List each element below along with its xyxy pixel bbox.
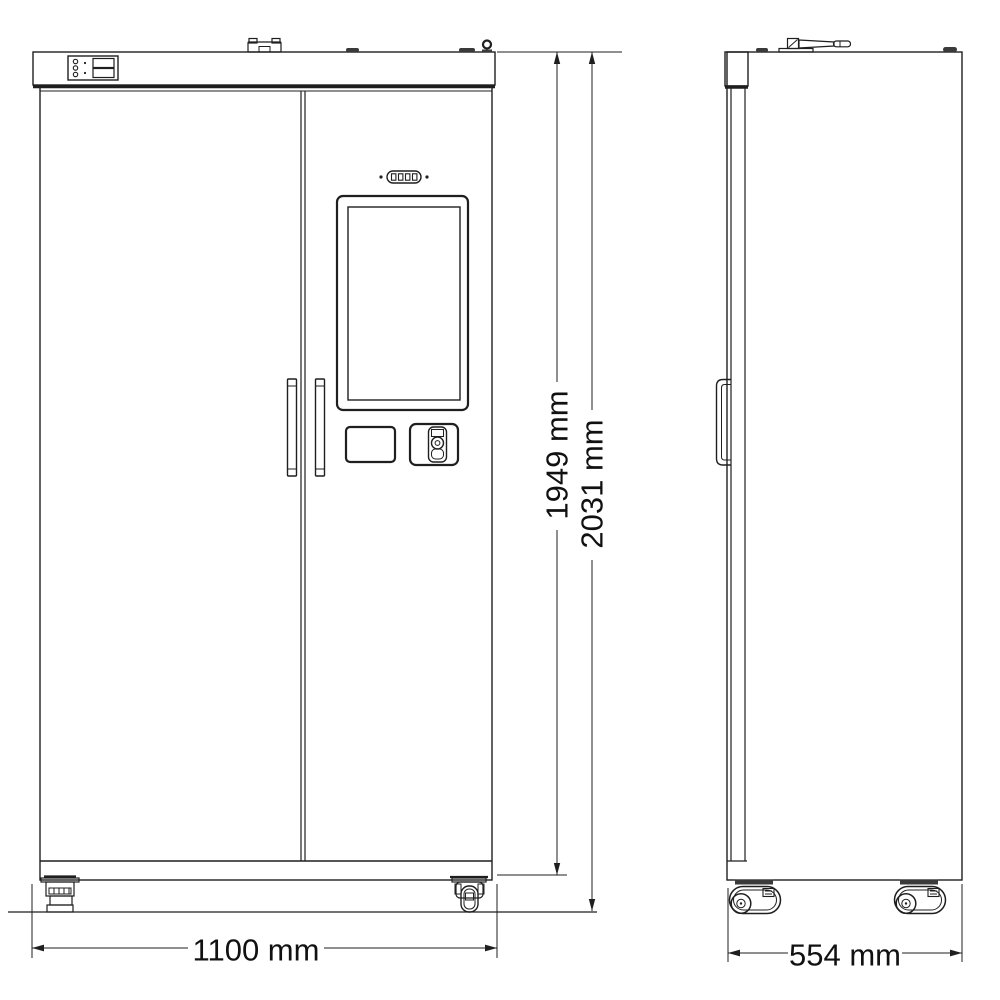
cam-lock <box>410 424 458 465</box>
led-icon <box>73 72 77 76</box>
side-view <box>717 39 963 914</box>
hinge-cap <box>459 48 475 52</box>
arrow-right-icon <box>485 945 497 952</box>
dot-icon <box>84 72 86 74</box>
hinge-cap <box>943 47 957 52</box>
hinge-cap <box>346 48 359 52</box>
hinge-cap <box>756 48 768 52</box>
arrow-left-icon <box>32 945 44 952</box>
swivel-caster-side-rear <box>895 880 946 914</box>
lift-ring-icon <box>483 41 491 49</box>
top-fittings <box>248 39 492 53</box>
dim-label-front-width: 1100 mm <box>193 933 320 968</box>
door-handle-left <box>288 379 297 476</box>
foot-teeth-row <box>49 888 71 894</box>
arrow-up-icon <box>589 52 595 64</box>
screen-bezel <box>337 196 468 410</box>
side-door-handle <box>717 380 732 466</box>
arrow-right-icon <box>950 950 962 957</box>
drawing-canvas: 1949 mm 2031 mm 1100 mm <box>0 0 1000 1000</box>
technical-drawing: 1949 mm 2031 mm 1100 mm <box>0 0 1000 1000</box>
indicator-led <box>413 174 417 180</box>
indicator-strip <box>379 171 428 183</box>
handle-bar <box>288 379 297 476</box>
side-band-block <box>725 52 748 86</box>
status-panel <box>68 56 118 80</box>
body-outline <box>40 86 492 880</box>
keyhole-icon <box>435 441 440 446</box>
top-band <box>33 52 495 91</box>
dot-icon <box>84 62 86 64</box>
indicator-pill <box>387 171 421 183</box>
dim-front-width-1100: 1100 mm <box>32 884 497 968</box>
dot-icon <box>379 175 382 178</box>
lock-cylinder-icon <box>432 437 444 449</box>
leveling-foot-front-left <box>41 877 79 913</box>
card-reader-tray <box>346 427 395 462</box>
cabinet-body <box>40 86 492 880</box>
door-handle-right <box>316 379 325 476</box>
antenna-rod <box>799 40 834 48</box>
arrow-down-icon <box>589 899 595 911</box>
dim-overall-height-2031: 2031 mm <box>575 52 610 911</box>
handle-inner-profile <box>722 385 732 461</box>
foot-stem <box>50 896 72 905</box>
arrow-left-icon <box>728 950 740 957</box>
screen-panel <box>348 207 460 400</box>
foot-pad <box>47 905 73 912</box>
indicator-led <box>399 174 403 180</box>
indicator-led <box>392 174 396 180</box>
indicator-led <box>406 174 410 180</box>
led-icon <box>73 59 77 63</box>
display-window <box>93 59 114 68</box>
front-view <box>33 39 495 913</box>
dim-depth-554: 554 mm <box>728 884 962 973</box>
led-icon <box>73 66 77 70</box>
side-body-outline <box>727 52 962 880</box>
touchscreen <box>337 196 468 410</box>
caster-hub <box>466 893 474 900</box>
door-edge-profile <box>727 88 747 861</box>
lock-top-window <box>432 430 444 437</box>
lift-ring-base <box>482 50 492 53</box>
arrow-up-icon <box>554 52 560 64</box>
handle-outer-profile <box>717 380 732 466</box>
dim-label-overall-height: 2031 mm <box>575 419 610 548</box>
wifi-antenna <box>779 39 851 53</box>
side-top-band <box>725 52 748 87</box>
swivel-caster-front-right <box>450 877 488 912</box>
swivel-caster-side-front <box>730 880 781 914</box>
lock-bottom-cap <box>432 449 444 459</box>
display-window <box>93 69 114 78</box>
antenna-joint-detail <box>789 40 798 48</box>
latch-notch <box>259 47 270 53</box>
arrow-down-icon <box>554 863 560 875</box>
dim-label-depth: 554 mm <box>789 938 901 973</box>
antenna-tip <box>834 41 851 47</box>
handle-bar <box>316 379 325 476</box>
dot-icon <box>425 175 428 178</box>
dim-label-cabinet-height: 1949 mm <box>540 390 575 519</box>
